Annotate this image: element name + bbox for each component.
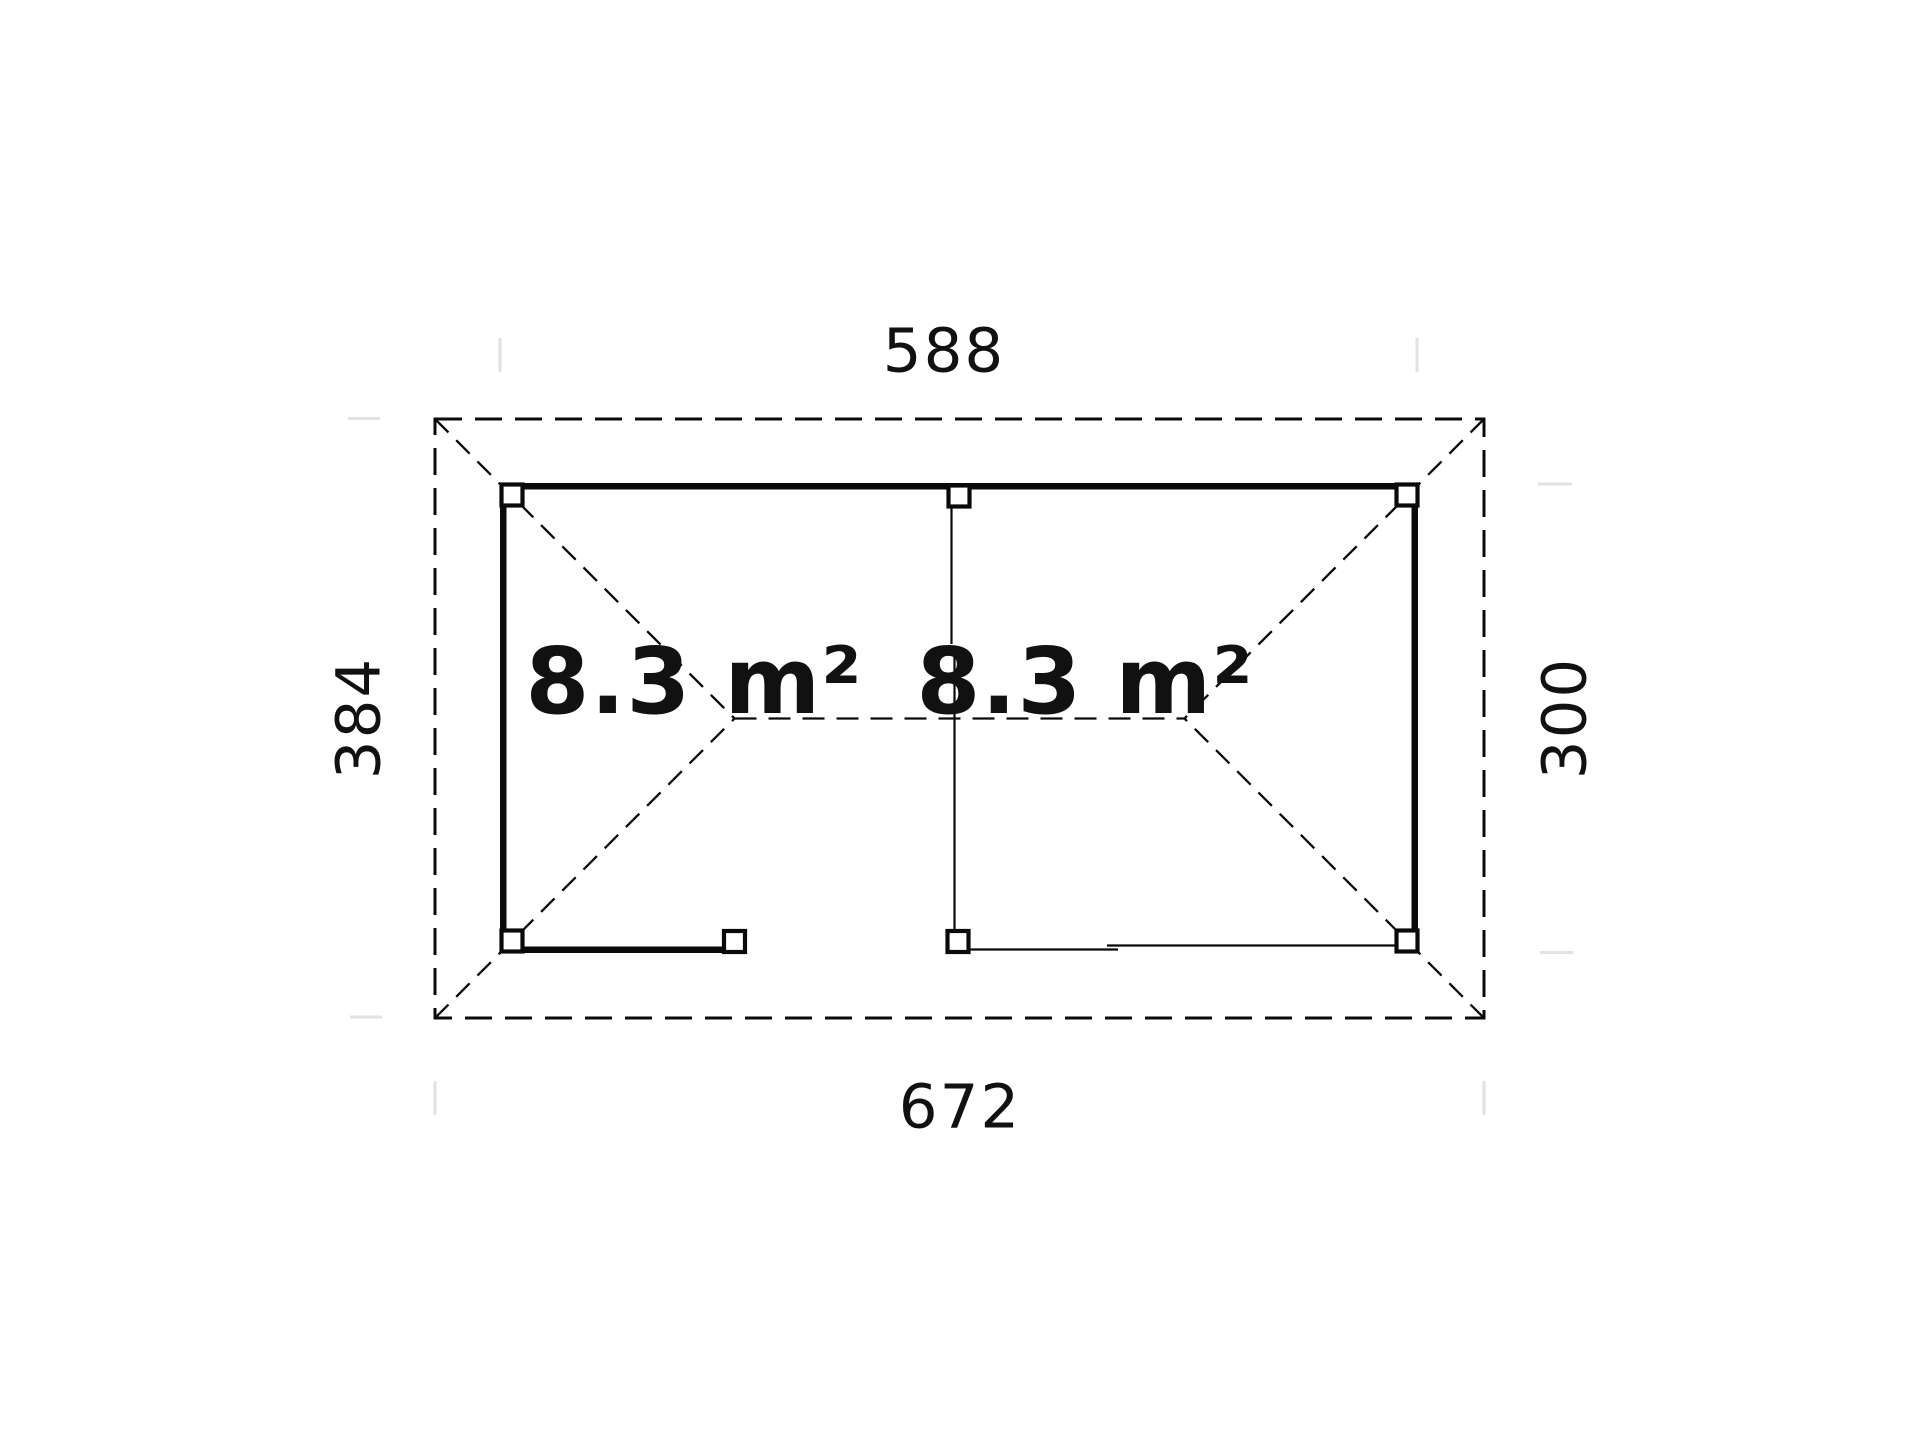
- post-top-right: [1397, 485, 1418, 506]
- floor-plan-page: 588 672 384 300 8.3 m² 8.3 m²: [0, 0, 1920, 1439]
- wall-bottom-left: [500, 947, 731, 954]
- dimension-right-height: 300: [1535, 657, 1596, 779]
- room-area-right: 8.3 m²: [916, 636, 1253, 728]
- post-bottom-left: [502, 931, 523, 952]
- hip-diagonal-bottom-right: [1185, 719, 1485, 1019]
- post-top-center: [949, 486, 970, 507]
- post-bottom-right: [1397, 931, 1418, 952]
- post-door-jamb: [724, 931, 745, 952]
- room-area-left: 8.3 m²: [525, 636, 862, 728]
- wall-right: [1412, 483, 1419, 953]
- dimension-bottom-width: 672: [899, 1077, 1021, 1138]
- wall-left: [500, 483, 507, 953]
- dimension-top-width: 588: [883, 321, 1005, 382]
- dimension-left-height: 384: [329, 657, 390, 779]
- post-bottom-center: [948, 931, 969, 952]
- post-top-left: [502, 485, 523, 506]
- hip-diagonal-bottom-left: [435, 719, 735, 1019]
